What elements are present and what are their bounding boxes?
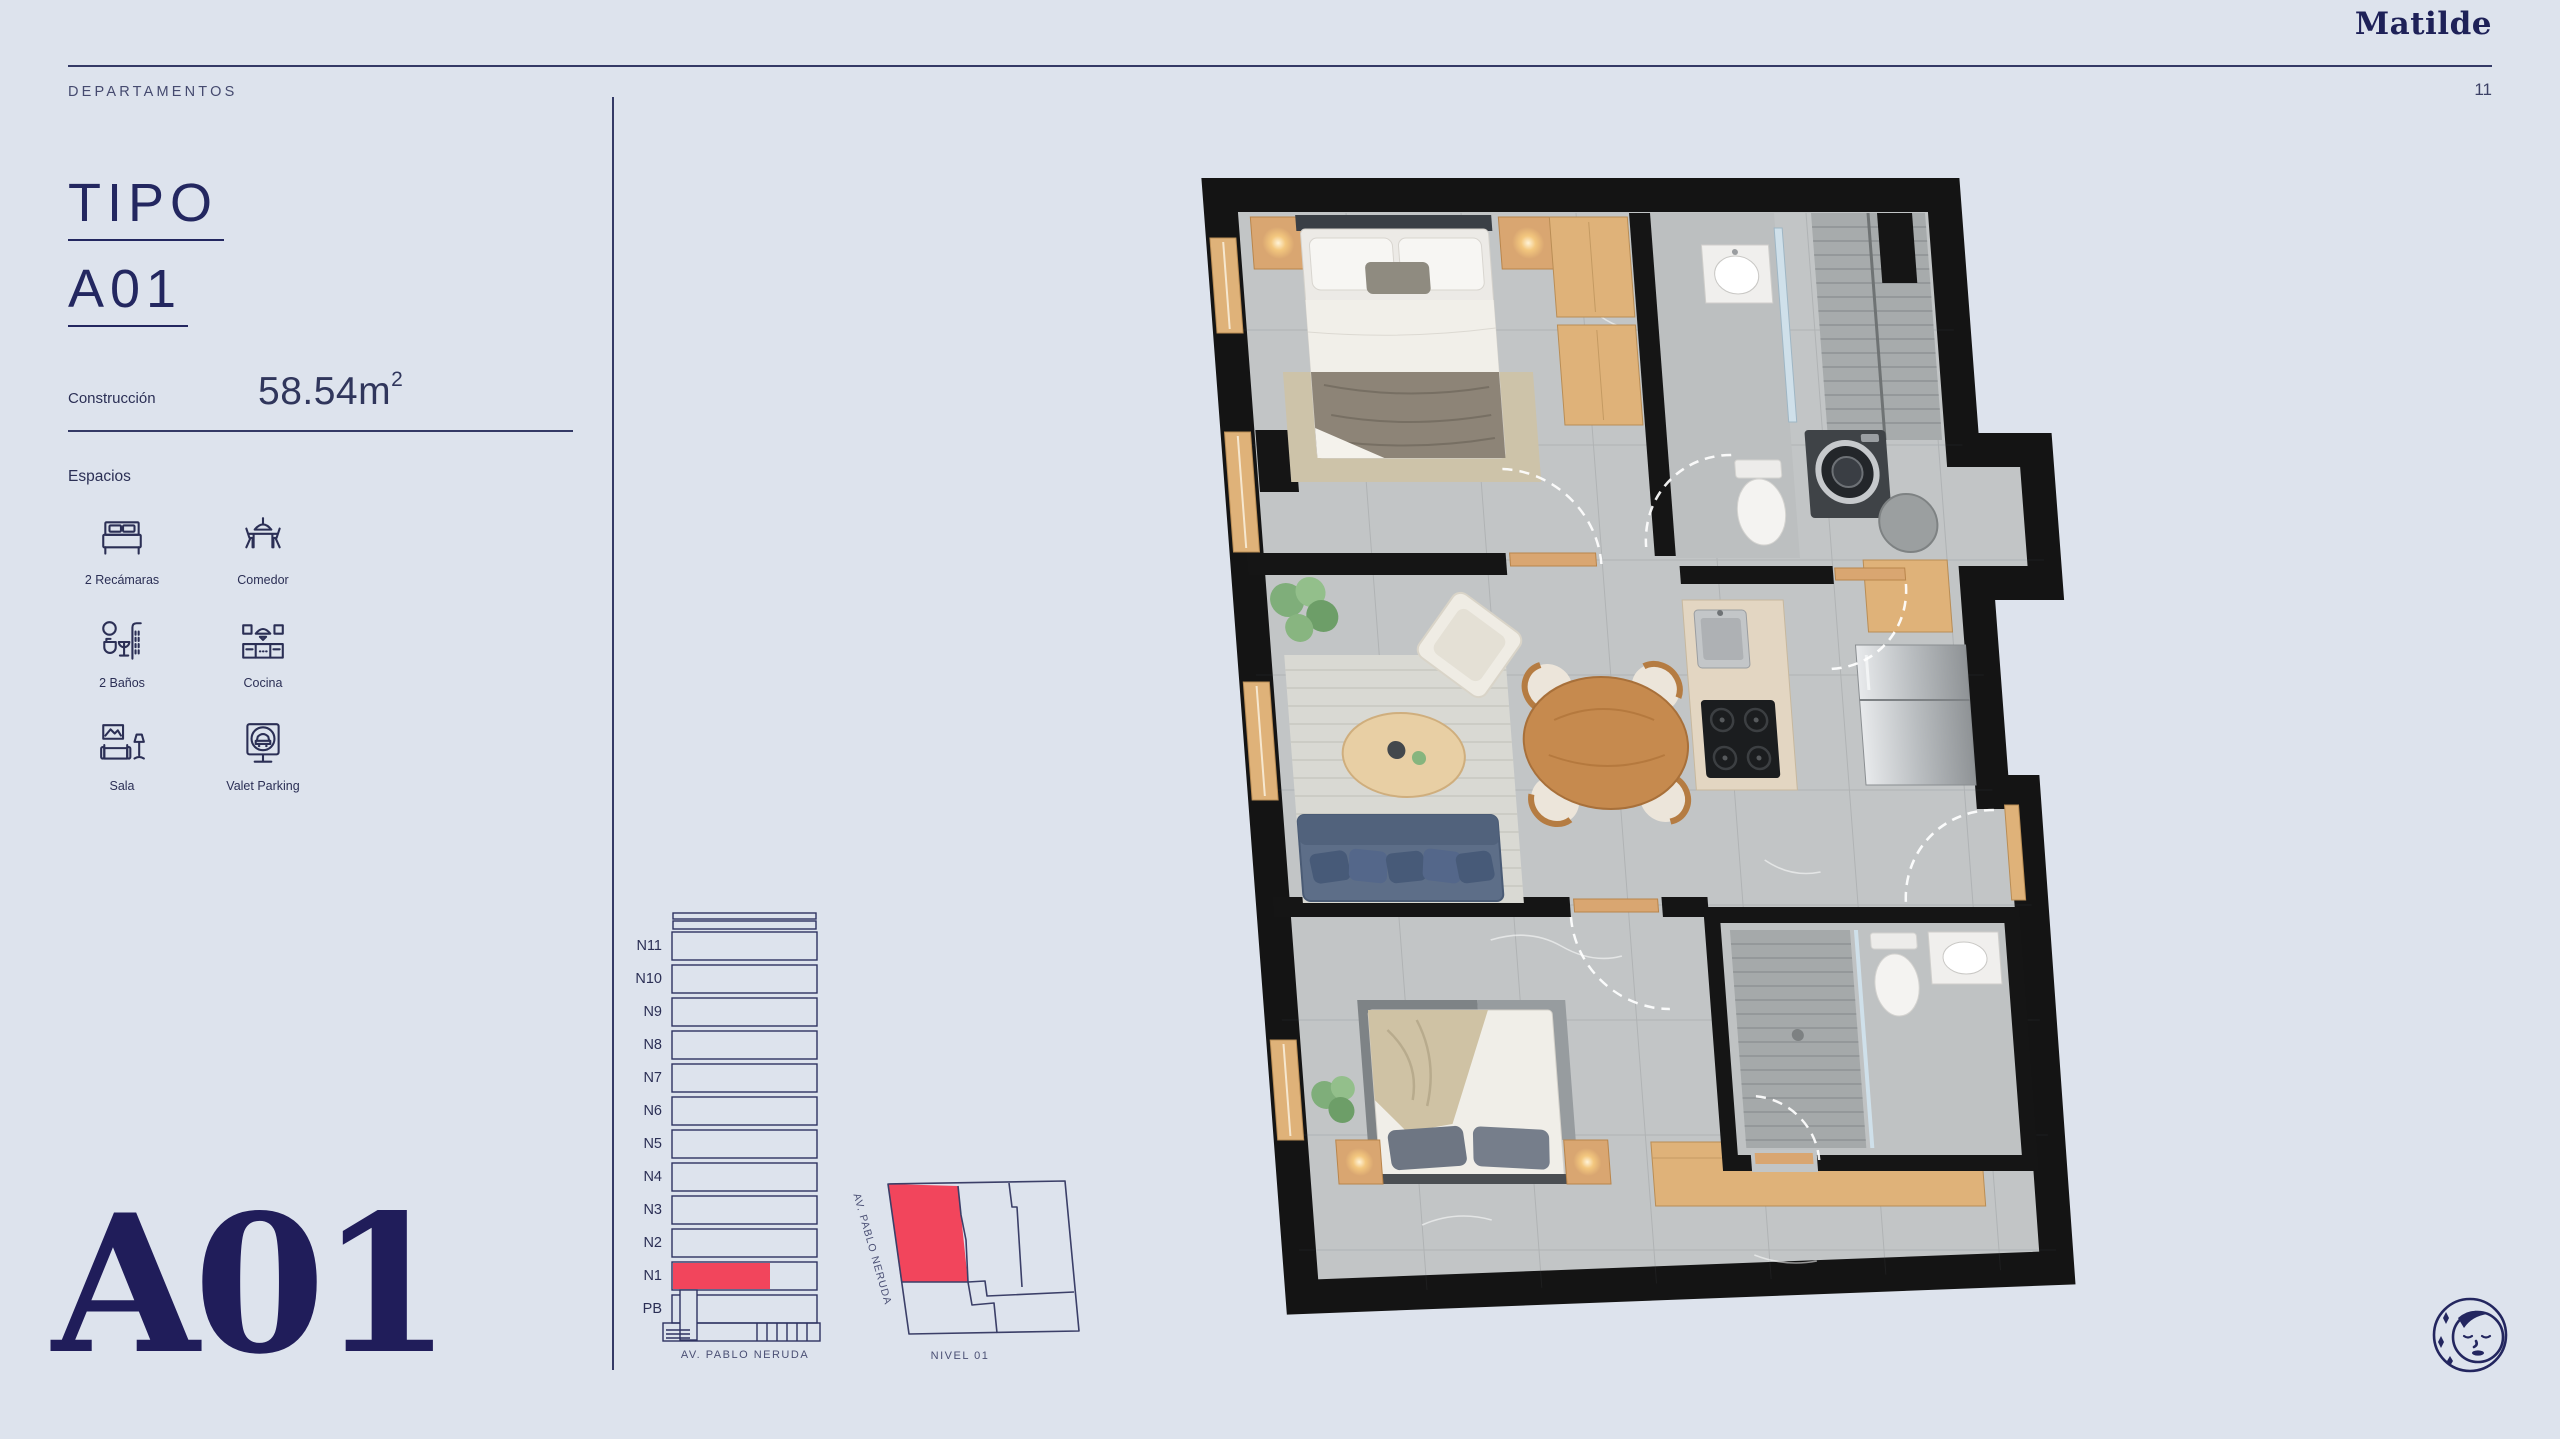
amenity-bathrooms: 2 Baños (97, 617, 147, 690)
unit-watermark: A01 (52, 1190, 446, 1380)
floor-label-n9: N9 (600, 1004, 662, 1020)
siteplan-caption: NIVEL 01 (895, 1350, 1025, 1362)
dining-icon (238, 514, 288, 564)
floor-label-n3: N3 (600, 1202, 662, 1218)
amenity-kitchen: Cocina (238, 617, 288, 690)
elevation-entrance (680, 1290, 697, 1340)
floor-label-pb: PB (600, 1301, 662, 1317)
sofa (1297, 815, 1503, 901)
kitchen-icon (238, 617, 288, 667)
amenity-label: Comedor (237, 573, 288, 587)
dining-table (1511, 656, 1700, 833)
construction-value: 58.54m2 (258, 368, 403, 414)
sink (1928, 932, 2002, 984)
site-plan (888, 1181, 1079, 1334)
section-title: DEPARTAMENTOS (68, 84, 237, 100)
building-elevation (663, 913, 820, 1341)
floor-label-n11: N11 (600, 938, 662, 954)
floor-label-n6: N6 (600, 1103, 662, 1119)
elevation-street-caption: AV. PABLO NERUDA (655, 1349, 835, 1361)
construction-label: Construcción (68, 390, 156, 407)
unit-title: TIPO A01 (68, 176, 224, 348)
brand-logo: Matilde (2355, 6, 2492, 42)
construction-rule (68, 430, 573, 432)
header-rule (68, 65, 2492, 67)
washer (1804, 430, 1892, 518)
floor-label-n7: N7 (600, 1070, 662, 1086)
floor-label-n1: N1 (600, 1268, 662, 1284)
cooktop (1701, 700, 1781, 778)
unit-title-line1: TIPO (68, 176, 224, 241)
bed-icon (97, 514, 147, 564)
bed-2 (1366, 1010, 1567, 1184)
floor-label-n2: N2 (600, 1235, 662, 1251)
floor-plan (1207, 195, 2103, 1297)
amenity-label: 2 Recámaras (85, 573, 159, 587)
floor-label-n8: N8 (600, 1037, 662, 1053)
elevation-highlight (673, 1263, 770, 1289)
amenities-grid: 2 Recámaras Comedor 2 Baños (56, 514, 338, 793)
bed-1 (1295, 215, 1509, 458)
amenity-dining: Comedor (237, 514, 288, 587)
amenity-label: Sala (109, 779, 134, 793)
amenity-bedrooms: 2 Recámaras (85, 514, 159, 587)
bath-icon (97, 617, 147, 667)
spaces-label: Espacios (68, 468, 131, 486)
floor-label-n4: N4 (600, 1169, 662, 1185)
amenity-valet: Valet Parking (226, 720, 299, 793)
moon-logo-icon (2434, 1299, 2506, 1371)
stairs (1811, 213, 1942, 440)
floor-label-n10: N10 (600, 971, 662, 987)
page-number: 11 (2474, 80, 2492, 100)
valet-parking-icon (238, 720, 288, 770)
amenity-label: 2 Baños (99, 676, 145, 690)
amenity-label: Valet Parking (226, 779, 299, 793)
sofa-icon (97, 720, 147, 770)
construction-superscript: 2 (391, 368, 403, 391)
door-sill (1755, 1153, 1814, 1164)
amenity-living: Sala (97, 720, 147, 793)
bathroom-2 (1712, 915, 2031, 1172)
unit-title-line2: A01 (68, 262, 188, 327)
fridge (1855, 645, 1976, 785)
amenity-label: Cocina (244, 676, 283, 690)
floor-label-n5: N5 (600, 1136, 662, 1152)
